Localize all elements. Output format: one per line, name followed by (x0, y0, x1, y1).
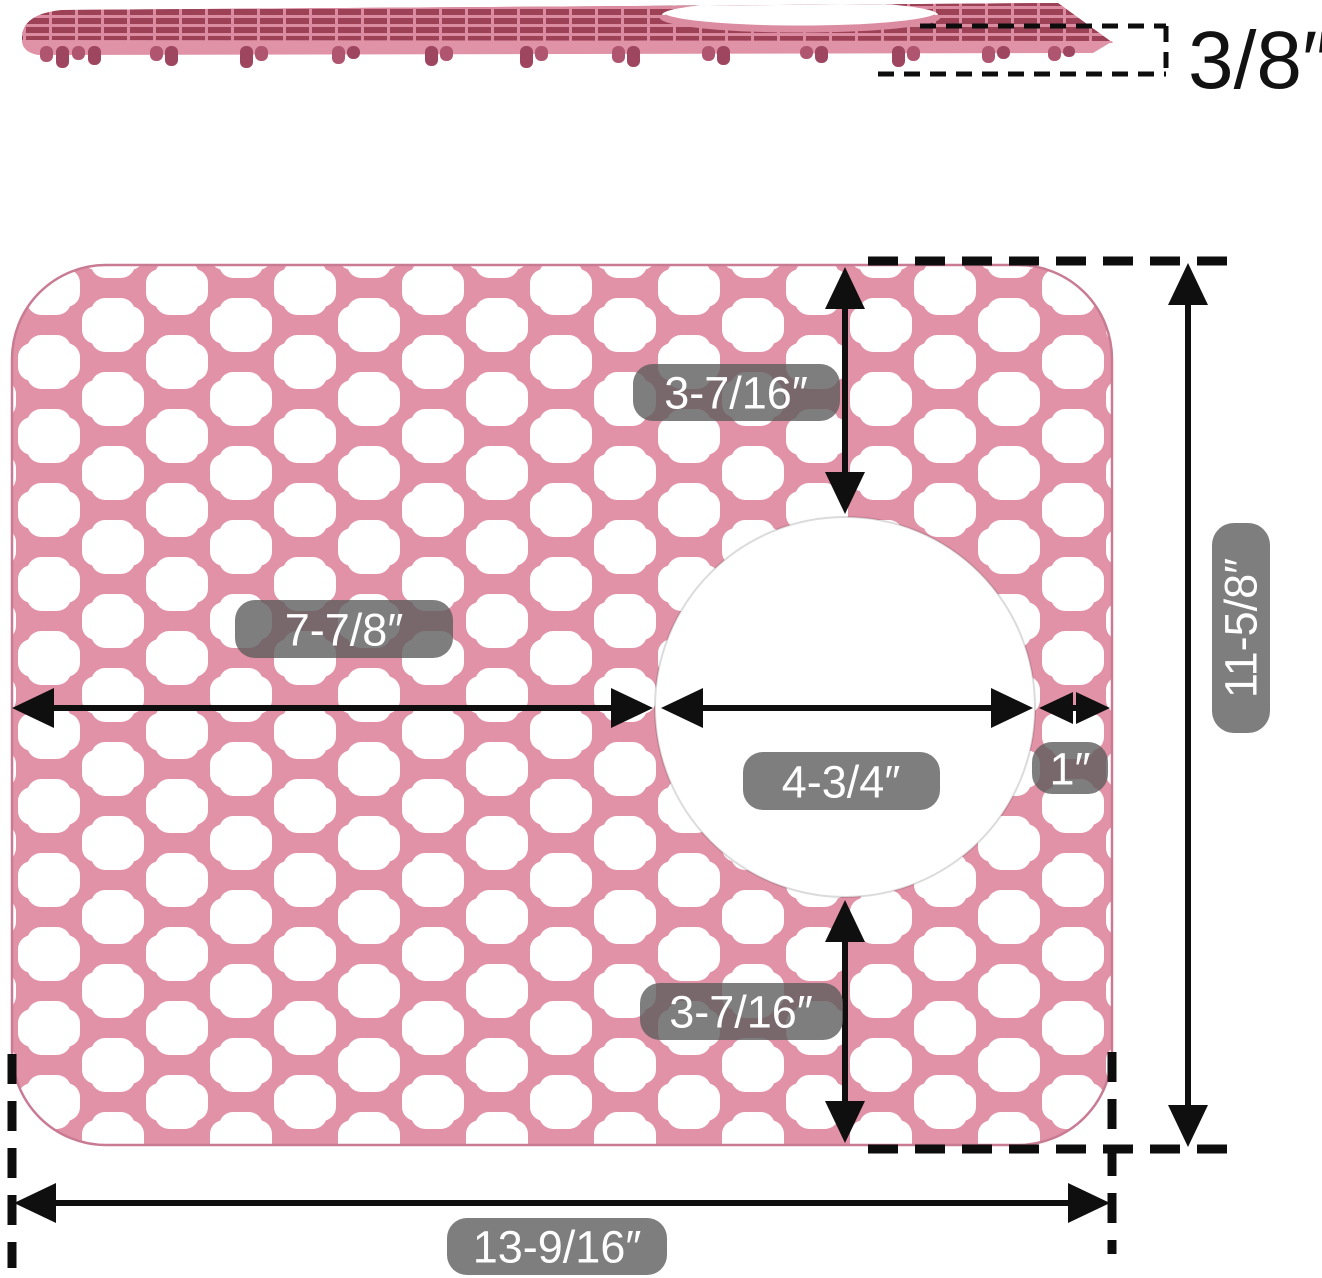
dim-left-to-hole-label: 7-7/8″ (235, 600, 453, 658)
svg-text:1″: 1″ (1050, 744, 1091, 795)
thickness-label: 3/8″ (1188, 15, 1322, 106)
dim-hole-diameter-label: 4-3/4″ (743, 752, 940, 810)
svg-text:13-9/16″: 13-9/16″ (473, 1222, 642, 1273)
dim-hole-to-right-label: 1″ (1032, 742, 1108, 795)
dim-overall-height-arrow (1168, 263, 1208, 1147)
svg-text:11-5/8″: 11-5/8″ (1216, 558, 1267, 698)
dim-overall-height-label: 11-5/8″ (1212, 523, 1270, 733)
dim-top-to-hole-label: 3-7/16″ (633, 364, 840, 421)
side-view (22, 1, 1114, 68)
svg-text:3-7/16″: 3-7/16″ (669, 987, 813, 1038)
svg-text:3-7/16″: 3-7/16″ (664, 368, 808, 419)
dim-overall-width-label: 13-9/16″ (447, 1218, 667, 1275)
product-dimension-diagram: 3/8″ (0, 0, 1322, 1278)
svg-text:7-7/8″: 7-7/8″ (285, 605, 404, 656)
svg-text:4-3/4″: 4-3/4″ (782, 757, 901, 808)
dim-hole-to-bottom-label: 3-7/16″ (640, 983, 843, 1040)
side-view-front-edge (22, 40, 1113, 55)
dim-overall-width-arrow (14, 1183, 1110, 1223)
